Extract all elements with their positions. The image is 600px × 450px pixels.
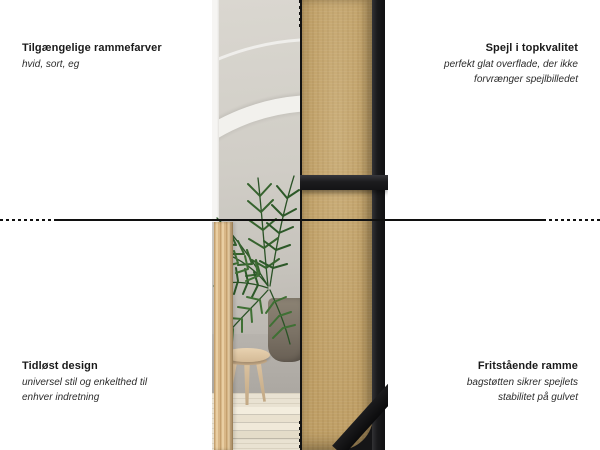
product-infographic: Tilgængelige rammefarver hvid, sort, eg … [0, 0, 600, 450]
mdf-back-panel [300, 0, 373, 450]
folded-textile [222, 407, 300, 414]
callout-subtitle: hvid, sort, eg [22, 58, 232, 73]
callout-timeless-design: Tidløst design universel stil og enkelth… [22, 360, 232, 405]
horizontal-guide-dotted-right [543, 219, 600, 221]
folded-textile [222, 415, 300, 422]
product-image [212, 0, 388, 450]
horizontal-guide-solid [57, 219, 543, 221]
callout-mirror-quality: Spejl i topkvalitet perfekt glat overfla… [368, 42, 578, 87]
mirror-front-photo [212, 0, 300, 450]
vertical-guide-dotted-top [299, 0, 301, 30]
callout-title: Spejl i topkvalitet [368, 42, 578, 54]
stool-leg [243, 362, 251, 405]
mirror-back-view [300, 0, 388, 450]
callout-subtitle: perfekt glat overflade, der ikke forvræn… [368, 58, 578, 87]
callout-title: Fritstående ramme [368, 360, 578, 372]
support-hinge-bar [300, 175, 388, 190]
callout-subtitle: universel stil og enkelthed til enhver i… [22, 376, 232, 405]
callout-title: Tidløst design [22, 360, 232, 372]
callout-freestanding-frame: Fritstående ramme bagstøtten sikrer spej… [368, 360, 578, 405]
callout-subtitle: bagstøtten sikrer spejlets stabilitet på… [368, 376, 578, 405]
black-frame-side-bar [372, 0, 385, 450]
oak-frame-strip [214, 222, 233, 450]
stool-leg [255, 362, 268, 403]
callout-frame-colors: Tilgængelige rammefarver hvid, sort, eg [22, 42, 232, 73]
folded-textile [222, 431, 300, 438]
callout-title: Tilgængelige rammefarver [22, 42, 232, 54]
folded-textile [222, 423, 300, 430]
horizontal-guide-dotted-left [0, 219, 57, 221]
vertical-guide-dotted-bottom [299, 421, 301, 450]
